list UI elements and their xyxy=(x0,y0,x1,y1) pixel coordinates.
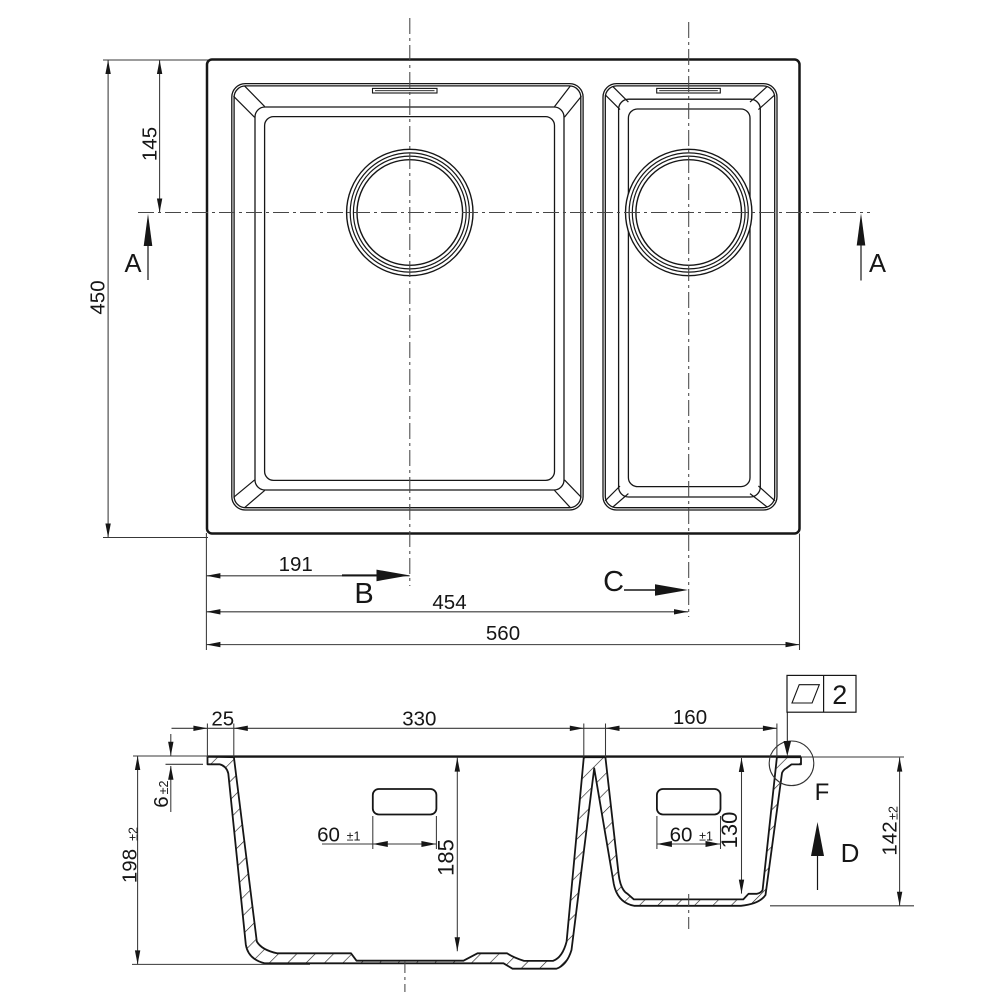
svg-text:±1: ±1 xyxy=(699,830,713,844)
svg-text:A: A xyxy=(869,250,886,278)
svg-text:±2: ±2 xyxy=(886,806,900,820)
svg-text:198: 198 xyxy=(119,849,142,883)
svg-text:±2: ±2 xyxy=(157,781,171,795)
svg-text:450: 450 xyxy=(87,280,110,314)
svg-text:185: 185 xyxy=(433,839,458,876)
svg-text:191: 191 xyxy=(279,553,313,576)
svg-text:130: 130 xyxy=(717,812,742,849)
svg-text:C: C xyxy=(603,566,624,598)
svg-text:145: 145 xyxy=(138,127,161,161)
svg-text:±1: ±1 xyxy=(347,830,361,844)
svg-text:330: 330 xyxy=(402,708,436,731)
svg-text:60: 60 xyxy=(670,824,693,847)
svg-text:142: 142 xyxy=(878,821,901,855)
svg-text:560: 560 xyxy=(486,622,520,645)
svg-text:60: 60 xyxy=(317,824,340,847)
svg-text:B: B xyxy=(354,578,373,610)
svg-text:F: F xyxy=(815,779,830,806)
svg-text:±2: ±2 xyxy=(126,827,140,841)
svg-text:160: 160 xyxy=(673,706,707,729)
svg-text:6: 6 xyxy=(150,796,173,807)
svg-text:2: 2 xyxy=(832,680,847,710)
svg-text:454: 454 xyxy=(432,591,466,614)
svg-text:A: A xyxy=(124,250,141,278)
svg-text:D: D xyxy=(841,838,860,868)
svg-text:25: 25 xyxy=(211,708,234,731)
